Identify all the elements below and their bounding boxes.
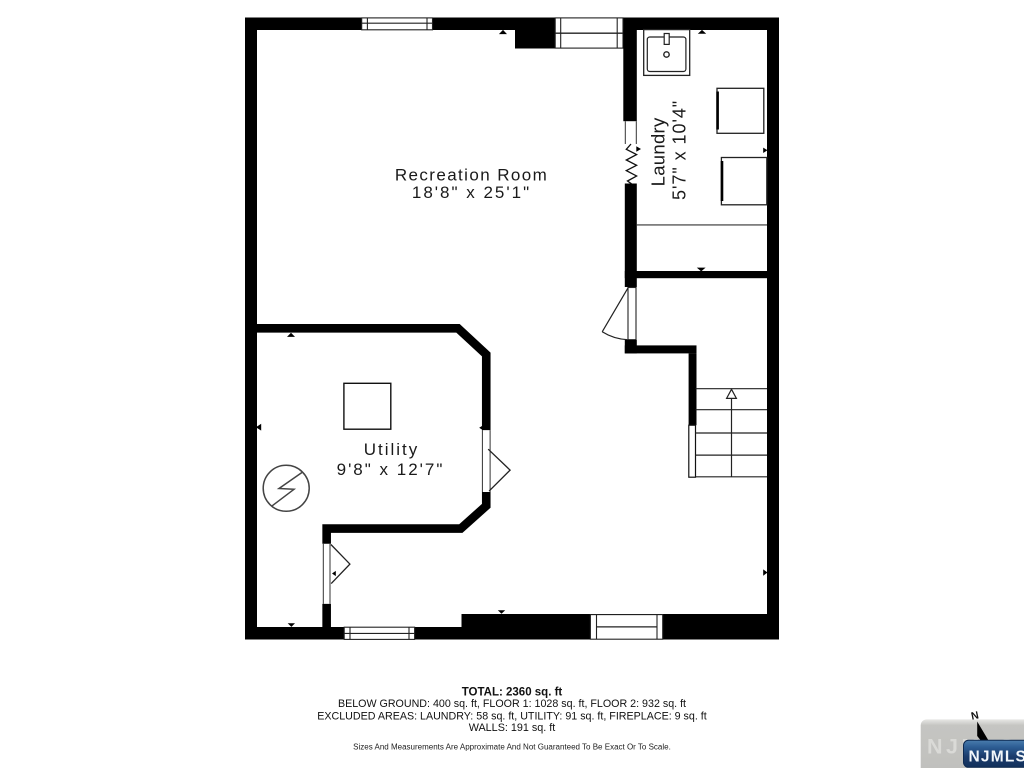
svg-text:WALLS: 191 sq. ft: WALLS: 191 sq. ft — [469, 722, 556, 734]
svg-text:Laundry: Laundry — [648, 117, 669, 186]
svg-text:Recreation Room: Recreation Room — [395, 165, 548, 184]
svg-text:Utility: Utility — [364, 440, 420, 459]
svg-text:EXCLUDED AREAS: LAUNDRY: 58 sq: EXCLUDED AREAS: LAUNDRY: 58 sq. ft, UTIL… — [317, 711, 706, 723]
svg-text:5'7" x 10'4": 5'7" x 10'4" — [670, 100, 690, 200]
svg-text:TOTAL: 2360 sq. ft: TOTAL: 2360 sq. ft — [462, 687, 563, 699]
svg-text:Sizes And Measurements Are App: Sizes And Measurements Are Approximate A… — [353, 743, 671, 752]
svg-text:NJMLS: NJMLS — [969, 749, 1024, 766]
svg-text:18'8" x 25'1": 18'8" x 25'1" — [412, 183, 531, 202]
svg-text:9'8" x 12'7": 9'8" x 12'7" — [337, 460, 445, 479]
svg-text:BELOW GROUND: 400 sq. ft, FLOO: BELOW GROUND: 400 sq. ft, FLOOR 1: 1028 … — [338, 698, 686, 710]
